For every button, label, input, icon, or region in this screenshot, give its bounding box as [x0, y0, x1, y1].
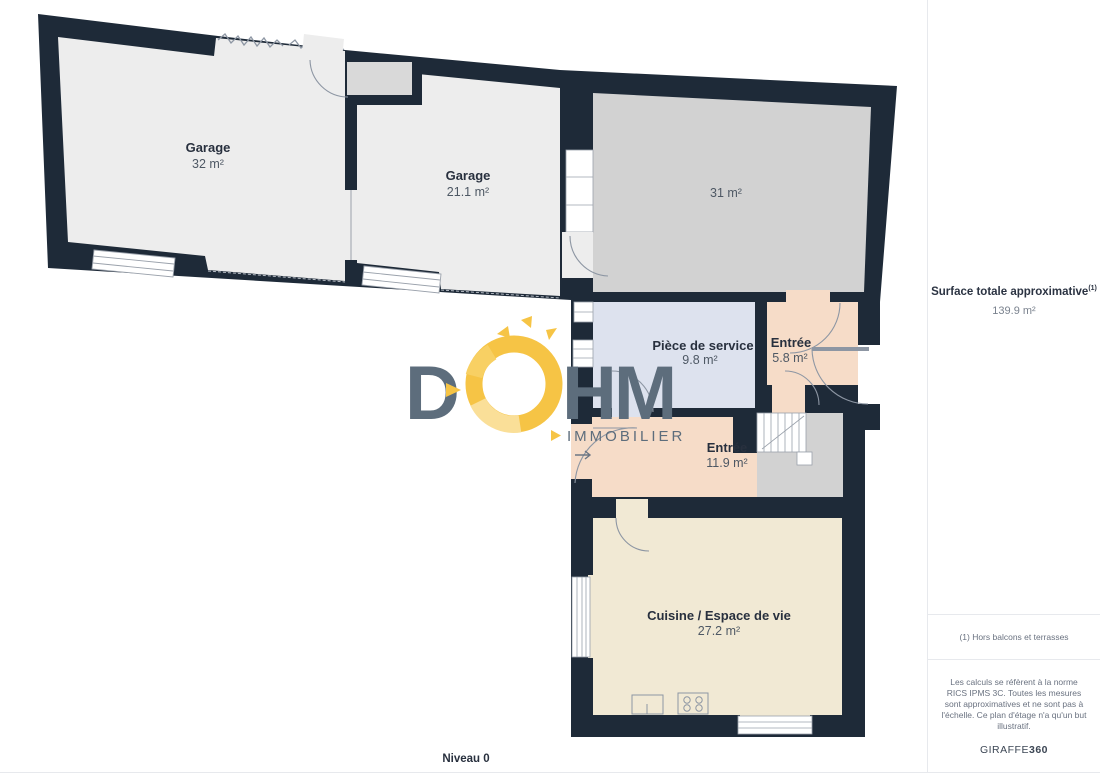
disclaimer-section: Les calculs se réfèrent à la norme RICS … — [928, 660, 1100, 756]
total-surface-label: Surface totale approximative(1) — [928, 285, 1100, 298]
vestibule-wall-h — [345, 95, 422, 105]
cuisine-door-opening — [616, 499, 648, 518]
room-garage-2-name: Garage — [446, 168, 491, 183]
window-cuisine-left — [572, 577, 590, 657]
room-entree-main-name: Entrée — [707, 440, 747, 455]
window-cuisine-bottom — [738, 716, 812, 734]
level-label: Niveau 0 — [442, 753, 489, 765]
footnote-section: (1) Hors balcons et terrasses — [928, 615, 1100, 660]
logo-subtitle: IMMOBILIER — [567, 428, 685, 445]
room-cuisine-area: 27.2 m² — [698, 624, 740, 638]
floor-plan-canvas: D HM IMMOBILIER Garage 32 m² Garage 21.1… — [0, 0, 927, 778]
room-entree-main-area: 11.9 m² — [706, 456, 747, 470]
room-entree-small-area: 5.8 m² — [772, 351, 807, 365]
page-bottom-divider — [0, 772, 1100, 773]
room-31-area: 31 m² — [710, 186, 742, 200]
vestibule-block — [347, 62, 412, 95]
room-garage-1-name: Garage — [186, 140, 231, 155]
footnote-text: (1) Hors balcons et terrasses — [959, 632, 1068, 642]
stair-newel — [797, 452, 812, 465]
garage-vestibule — [345, 60, 422, 105]
cuisine-window-inset — [740, 707, 810, 716]
room-cuisine-name: Cuisine / Espace de vie — [647, 608, 791, 623]
logo-ray-icon — [497, 326, 510, 338]
main-entry-opening — [858, 345, 880, 404]
brand-name: GIRAFFE — [980, 744, 1029, 756]
brand-suffix: 360 — [1029, 744, 1048, 756]
garage-room31-door-opening — [562, 232, 593, 278]
brand-logo: GIRAFFE360 — [928, 744, 1100, 756]
logo-ray-icon — [521, 316, 532, 328]
floor-plan-svg: D HM IMMOBILIER Garage 32 m² Garage 21.1… — [0, 0, 927, 778]
logo-subtitle-triangle-icon — [551, 430, 561, 441]
vestibule-wall-v — [412, 60, 422, 105]
summary-sidebar: Surface totale approximative(1) 139.9 m²… — [927, 0, 1100, 773]
room31-entree-door-opening — [786, 290, 830, 303]
logo-ring-light-segment — [478, 402, 520, 424]
logo-letters-hm: HM — [562, 351, 674, 436]
total-surface-label-text: Surface totale approximative — [931, 286, 1088, 298]
total-surface-section: Surface totale approximative(1) 139.9 m² — [928, 0, 1100, 615]
entree-stairs-door-opening — [772, 385, 805, 413]
room-entree-small-name: Entrée — [771, 335, 811, 350]
logo-ray-icon — [546, 328, 557, 340]
total-surface-value: 139.9 m² — [928, 305, 1100, 317]
disclaimer-text: Les calculs se réfèrent à la norme RICS … — [940, 677, 1088, 732]
logo-ring-mid-segment — [474, 352, 492, 376]
floor-plan-page: D HM IMMOBILIER Garage 32 m² Garage 21.1… — [0, 0, 1100, 778]
room-service-area: 9.8 m² — [682, 353, 717, 367]
room-garage-1-area: 32 m² — [192, 157, 224, 171]
room-service-name: Pièce de service — [652, 338, 753, 353]
room-garage-2-area: 21.1 m² — [447, 185, 489, 199]
window-room31 — [566, 150, 593, 232]
total-surface-superscript: (1) — [1088, 285, 1097, 292]
